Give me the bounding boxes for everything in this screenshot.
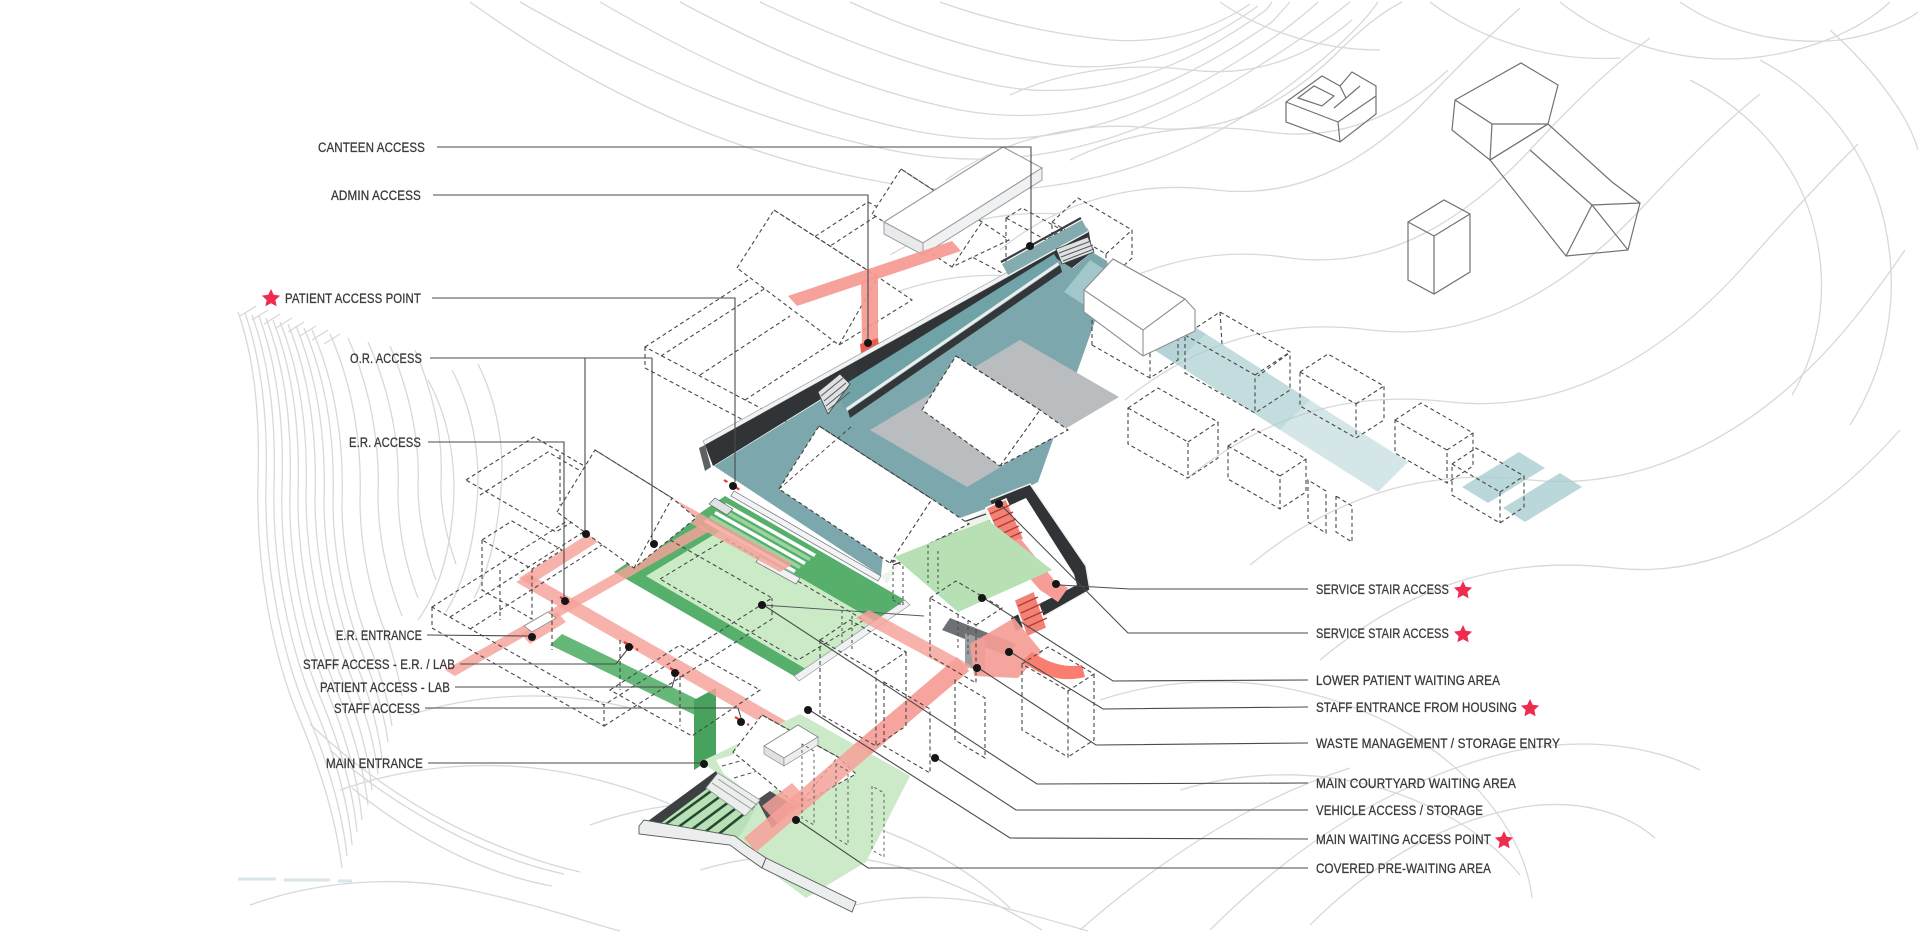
svg-text:CANTEEN ACCESS: CANTEEN ACCESS xyxy=(318,140,425,155)
svg-text:WASTE MANAGEMENT / STORAGE ENT: WASTE MANAGEMENT / STORAGE ENTRY xyxy=(1316,736,1560,751)
svg-text:VEHICLE ACCESS / STORAGE: VEHICLE ACCESS / STORAGE xyxy=(1316,803,1483,818)
svg-text:E.R. ENTRANCE: E.R. ENTRANCE xyxy=(336,628,422,643)
svg-text:SERVICE STAIR ACCESS: SERVICE STAIR ACCESS xyxy=(1316,626,1449,641)
svg-text:MAIN COURTYARD WAITING AREA: MAIN COURTYARD WAITING AREA xyxy=(1316,776,1516,791)
svg-text:ADMIN ACCESS: ADMIN ACCESS xyxy=(331,188,421,203)
svg-text:PATIENT ACCESS - LAB: PATIENT ACCESS - LAB xyxy=(320,680,450,695)
svg-text:PATIENT ACCESS POINT: PATIENT ACCESS POINT xyxy=(285,291,421,306)
svg-text:SERVICE STAIR ACCESS: SERVICE STAIR ACCESS xyxy=(1316,582,1449,597)
svg-text:MAIN ENTRANCE: MAIN ENTRANCE xyxy=(326,756,423,771)
svg-text:STAFF ACCESS: STAFF ACCESS xyxy=(334,701,420,716)
svg-text:LOWER PATIENT WAITING AREA: LOWER PATIENT WAITING AREA xyxy=(1316,673,1500,688)
svg-text:MAIN WAITING ACCESS POINT: MAIN WAITING ACCESS POINT xyxy=(1316,832,1491,847)
svg-text:COVERED PRE-WAITING AREA: COVERED PRE-WAITING AREA xyxy=(1316,861,1491,876)
svg-text:STAFF ACCESS - E.R. / LAB: STAFF ACCESS - E.R. / LAB xyxy=(303,657,455,672)
svg-text:STAFF ENTRANCE FROM HOUSING: STAFF ENTRANCE FROM HOUSING xyxy=(1316,700,1517,715)
svg-text:O.R. ACCESS: O.R. ACCESS xyxy=(350,351,422,366)
svg-text:E.R. ACCESS: E.R. ACCESS xyxy=(349,435,421,450)
